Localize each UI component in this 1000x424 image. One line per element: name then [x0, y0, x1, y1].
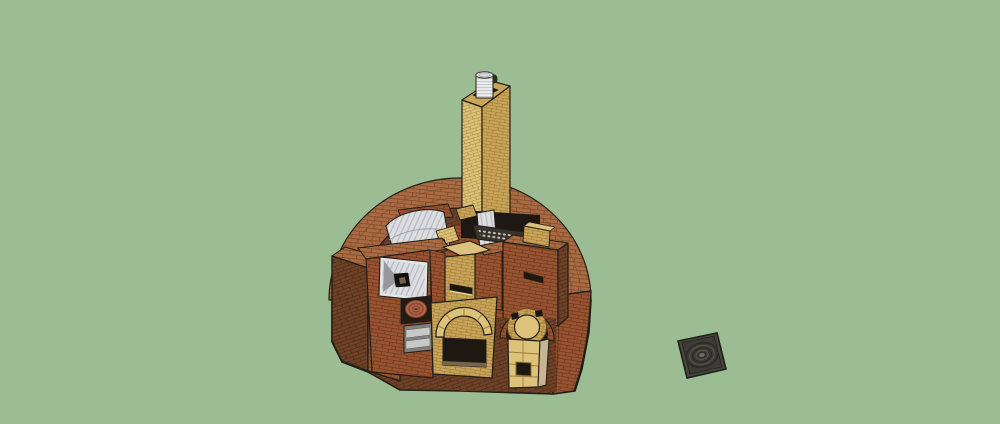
coil-alcove[interactable] — [401, 296, 431, 324]
bell-notch — [535, 310, 543, 317]
cleanout-door[interactable] — [404, 323, 432, 353]
coil-center — [415, 308, 418, 310]
flue-pipe-opening — [479, 73, 490, 77]
funnel-chute-inner — [399, 277, 406, 284]
model-canvas[interactable] — [0, 0, 1000, 424]
tower-side-face — [558, 243, 568, 326]
hopper-funnel[interactable] — [379, 257, 428, 301]
shaft-opening[interactable] — [516, 362, 531, 376]
sketchup-viewport[interactable] — [0, 0, 1000, 424]
cast-iron-plate-model[interactable] — [678, 333, 726, 378]
firebox[interactable] — [431, 297, 497, 378]
